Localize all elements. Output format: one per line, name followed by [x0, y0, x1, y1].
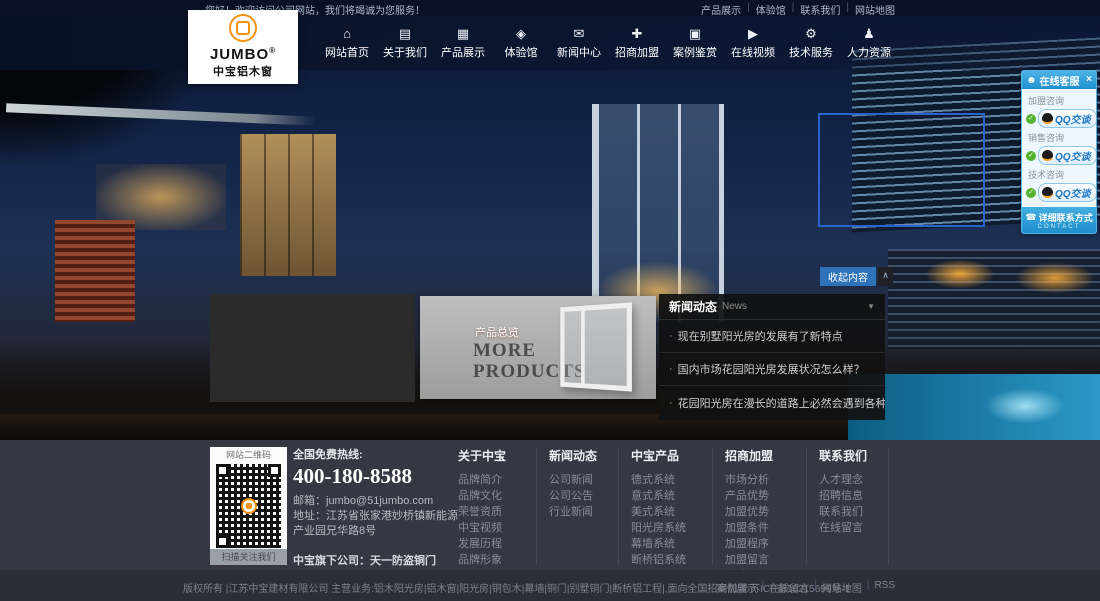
bottom-link-message[interactable]: 在线留言 — [769, 580, 809, 595]
footer-link[interactable]: 幕墙系统 — [631, 536, 700, 552]
hero-wood-wall — [55, 220, 135, 322]
hero-window-glow — [925, 259, 995, 289]
logo-brand: JUMBO® — [210, 42, 276, 63]
bottom-link-rss[interactable]: RSS — [874, 580, 895, 595]
service-user-icon: ☻ — [1026, 75, 1037, 86]
news-item[interactable]: · 花园阳光房在漫长的道路上必然会遇到各种挑战 — [659, 386, 885, 419]
qr-caption: 扫描关注我们 — [210, 549, 287, 565]
news-panel: 新闻动态 News ▼ · 现在别墅阳光房的发展有了新特点 · 国内市场花园阳光… — [659, 294, 885, 420]
window-illustration — [560, 302, 632, 391]
service-panel-header: ☻ 在线客服 × — [1022, 71, 1096, 89]
footer-column-contact: 联系我们 人才理念 招聘信息 联系我们 在线留言 — [807, 447, 889, 565]
collapse-controls: 收起内容 ∧ — [820, 267, 893, 286]
user-plus-icon: ✚ — [632, 27, 643, 42]
address-line: 地址：江苏省张家港妙桥镇新能源产业园兄华路8号 — [293, 509, 461, 539]
page: 您好！欢迎访问公司网站，我们将竭诚为您服务！ 产品展示 | 体验馆 | 联系我们… — [0, 0, 1100, 601]
footer-link[interactable]: 断桥铝系统 — [631, 552, 700, 568]
footer-link[interactable]: 加盟条件 — [725, 520, 794, 536]
qq-penguin-icon — [1042, 150, 1053, 161]
footer-column-about: 关于中宝 品牌简介 品牌文化 荣誉资质 中宝视频 发展历程 品牌形象 — [458, 447, 537, 565]
bottom-link-sitemap[interactable]: 网站地图 — [822, 580, 862, 595]
qq-chat-button[interactable]: QQ交谈 — [1038, 109, 1097, 128]
top-link-contact[interactable]: 联系我们 — [800, 2, 840, 17]
footer-link[interactable]: 联系我们 — [819, 504, 876, 520]
news-item[interactable]: · 现在别墅阳光房的发展有了新特点 — [659, 320, 885, 353]
footer-link[interactable]: 美式系统 — [631, 504, 700, 520]
footer-link[interactable]: 荣誉资质 — [458, 504, 524, 520]
nav-item-about[interactable]: ▤ 关于我们 — [376, 16, 434, 70]
shield-icon: ◈ — [516, 27, 526, 42]
close-icon[interactable]: × — [1086, 75, 1092, 85]
hotline-label: 全国免费热线: — [293, 446, 461, 462]
chat-icon: ☎ — [1025, 212, 1036, 223]
footer-link[interactable]: 德式系统 — [631, 472, 700, 488]
separator: | — [792, 2, 795, 17]
footer-link[interactable]: 中宝视频 — [458, 520, 524, 536]
top-link-products[interactable]: 产品展示 — [701, 2, 741, 17]
nav-item-home[interactable]: ⌂ 网站首页 — [318, 16, 376, 70]
hero-window-glow — [1015, 262, 1095, 294]
subsidiary-line: 中宝旗下公司：天一防盗铜门 — [293, 552, 461, 568]
online-status-icon: ✓ — [1026, 188, 1036, 198]
top-link-sitemap[interactable]: 网站地图 — [855, 2, 895, 17]
separator: | — [747, 2, 750, 17]
product-dark-panel — [210, 294, 415, 402]
footer-link[interactable]: 公司公告 — [549, 488, 606, 504]
gallery-icon: ▣ — [689, 27, 701, 42]
online-status-icon: ✓ — [1026, 114, 1036, 124]
service-group-label: 销售咨询 — [1028, 131, 1092, 144]
footer-link[interactable]: 公司新闻 — [549, 472, 606, 488]
qr-title: 网站二维码 — [210, 447, 287, 463]
qq-chat-button[interactable]: QQ交谈 — [1038, 183, 1097, 202]
footer-link[interactable]: 品牌简介 — [458, 472, 524, 488]
news-title: 新闻动态 — [669, 298, 717, 315]
qr-code-image — [216, 464, 281, 548]
footer-link[interactable]: 品牌文化 — [458, 488, 524, 504]
service-panel-body: 加盟咨询 ✓ QQ交谈 销售咨询 ✓ QQ交谈 技术咨询 ✓ — [1022, 89, 1096, 207]
nav-item-service[interactable]: ⚙ 技术服务 — [782, 16, 840, 70]
nav-item-products[interactable]: ▦ 产品展示 — [434, 16, 492, 70]
footer-column-franchise: 招商加盟 市场分析 产品优势 加盟优势 加盟条件 加盟程序 加盟留言 申请表下载 — [713, 447, 807, 565]
footer-link[interactable]: 产品优势 — [725, 488, 794, 504]
footer-column-products: 中宝产品 德式系统 意式系统 美式系统 阳光房系统 幕墙系统 断桥铝系统 — [619, 447, 713, 565]
contact-details-button[interactable]: ☎ 详细联系方式 CONTACT — [1022, 207, 1096, 233]
company-logo[interactable]: JUMBO® 中宝铝木窗 — [188, 10, 298, 84]
book-icon: ▤ — [399, 27, 411, 42]
service-row: ✓ QQ交谈 — [1026, 146, 1092, 165]
nav-item-news[interactable]: ✉ 新闻中心 — [550, 16, 608, 70]
briefcase-icon: ⚙ — [805, 27, 817, 42]
hero-lit-interior — [240, 134, 336, 276]
qq-chat-button[interactable]: QQ交谈 — [1038, 146, 1097, 165]
more-products-card[interactable]: 产品总览 MOREPRODUCTS — [420, 296, 656, 399]
nav-item-experience[interactable]: ◈ 体验馆 — [492, 16, 550, 70]
bottom-link-cases[interactable]: 案例展示 — [717, 580, 757, 595]
footer-link[interactable]: 招聘信息 — [819, 488, 876, 504]
footer-link[interactable]: 发展历程 — [458, 536, 524, 552]
bottom-bar: 版权所有 |江苏中宝建材有限公司 主营业务:铝木阳光房|铝木窗|阳光房|铜包木|… — [0, 570, 1100, 601]
service-row: ✓ QQ交谈 — [1026, 109, 1092, 128]
hotline-number: 400-180-8588 — [293, 464, 461, 489]
footer-contact-block: 全国免费热线: 400-180-8588 邮箱：jumbo@51jumbo.co… — [293, 446, 461, 568]
nav-item-hr[interactable]: ♟ 人力资源 — [840, 16, 898, 70]
footer: 网站二维码 扫描关注我们 全国免费热线: 400-180-8588 邮箱：jum… — [0, 440, 1100, 570]
service-group-label: 技术咨询 — [1028, 168, 1092, 181]
news-item[interactable]: · 国内市场花园阳光房发展状况怎么样？ — [659, 353, 885, 386]
logo-subtitle: 中宝铝木窗 — [213, 63, 273, 79]
qr-center-logo — [241, 498, 257, 514]
footer-link[interactable]: 意式系统 — [631, 488, 700, 504]
video-icon: ▶ — [748, 27, 758, 42]
footer-link[interactable]: 加盟程序 — [725, 536, 794, 552]
person-icon: ♟ — [863, 27, 875, 42]
footer-link[interactable]: 市场分析 — [725, 472, 794, 488]
jumbo-emblem-icon — [229, 14, 257, 42]
main-navigation: ⌂ 网站首页 ▤ 关于我们 ▦ 产品展示 ◈ 体验馆 ✉ 新闻中心 ✚ 招商加盟 — [0, 16, 1100, 70]
nav-item-cases[interactable]: ▣ 案例鉴赏 — [666, 16, 724, 70]
separator: | — [846, 2, 849, 17]
service-group-label: 加盟咨询 — [1028, 94, 1092, 107]
news-subtitle: News — [722, 301, 747, 312]
hero-pool-light — [985, 388, 1065, 424]
nav-items: ⌂ 网站首页 ▤ 关于我们 ▦ 产品展示 ◈ 体验馆 ✉ 新闻中心 ✚ 招商加盟 — [318, 16, 898, 70]
nav-item-join[interactable]: ✚ 招商加盟 — [608, 16, 666, 70]
chevron-down-icon[interactable]: ▼ — [867, 302, 875, 311]
qr-code-card: 网站二维码 扫描关注我们 — [210, 447, 287, 565]
collapse-content-button[interactable]: 收起内容 — [820, 267, 876, 286]
qq-penguin-icon — [1042, 113, 1053, 124]
top-links: 产品展示 | 体验馆 | 联系我们 | 网站地图 — [701, 2, 895, 17]
footer-link[interactable]: 品牌形象 — [458, 552, 524, 568]
top-link-experience[interactable]: 体验馆 — [756, 2, 786, 17]
qq-penguin-icon — [1042, 187, 1053, 198]
footer-link[interactable]: 在线留言 — [819, 520, 876, 536]
email-line: 邮箱：jumbo@51jumbo.com — [293, 494, 461, 509]
news-header: 新闻动态 News ▼ — [659, 294, 885, 320]
online-service-panel: ☻ 在线客服 × 加盟咨询 ✓ QQ交谈 销售咨询 ✓ QQ交谈 技术咨询 — [1021, 70, 1097, 234]
top-bar: 您好！欢迎访问公司网站，我们将竭诚为您服务！ 产品展示 | 体验馆 | 联系我们… — [0, 0, 1100, 16]
grid-icon: ▦ — [457, 27, 469, 42]
service-row: ✓ QQ交谈 — [1026, 183, 1092, 202]
bottom-links: 案例展示 | 在线留言 | 网站地图 | RSS — [717, 580, 895, 595]
footer-link-columns: 关于中宝 品牌简介 品牌文化 荣誉资质 中宝视频 发展历程 品牌形象 新闻动态 … — [458, 447, 889, 565]
nav-item-video[interactable]: ▶ 在线视频 — [724, 16, 782, 70]
product-overview-tag: 产品总览 — [475, 324, 519, 340]
footer-link[interactable]: 人才理念 — [819, 472, 876, 488]
footer-column-news: 新闻动态 公司新闻 公司公告 行业新闻 — [537, 447, 619, 565]
service-panel-title: 在线客服 — [1040, 73, 1080, 88]
online-status-icon: ✓ — [1026, 151, 1036, 161]
collapse-arrow-icon[interactable]: ∧ — [878, 267, 893, 286]
footer-link[interactable]: 阳光房系统 — [631, 520, 700, 536]
footer-link[interactable]: 行业新闻 — [549, 504, 606, 520]
home-icon: ⌂ — [343, 27, 351, 42]
news-icon: ✉ — [574, 27, 585, 42]
footer-link[interactable]: 加盟留言 — [725, 552, 794, 568]
footer-link[interactable]: 加盟优势 — [725, 504, 794, 520]
hero-highlight-box — [818, 113, 985, 227]
